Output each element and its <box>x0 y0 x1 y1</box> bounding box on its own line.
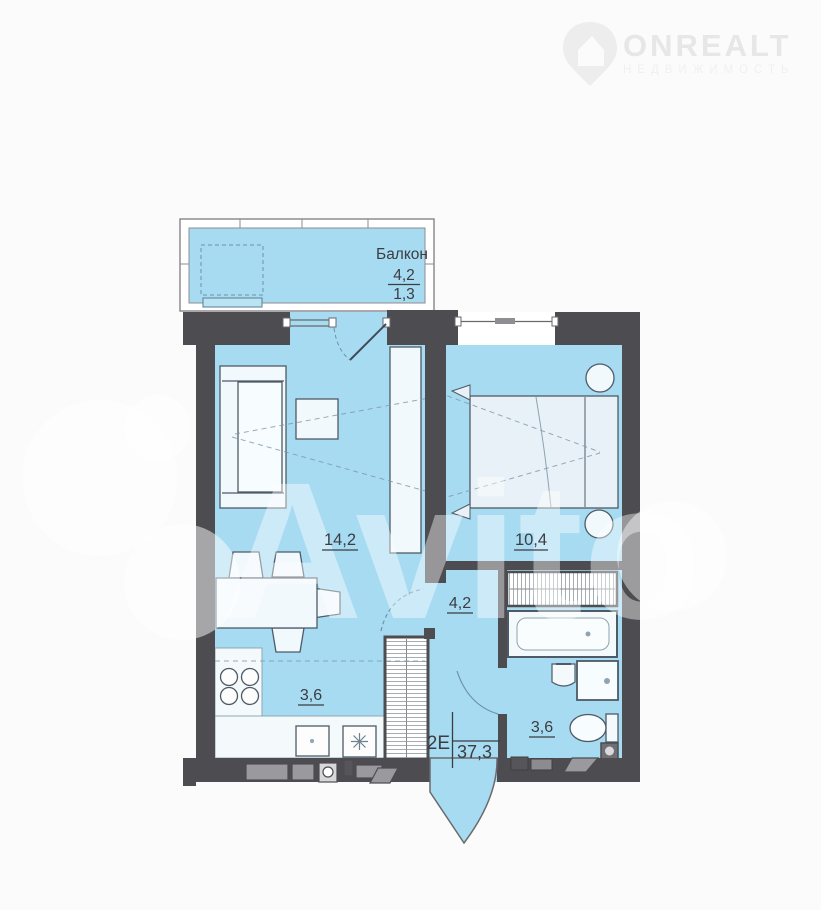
wall-hall-bath-lower <box>498 714 507 758</box>
door-mat <box>511 757 552 770</box>
floor-drain <box>601 743 618 759</box>
balcony-area-full: 4,2 <box>393 267 415 284</box>
entrance-door-swing <box>430 758 497 843</box>
balcony-area-counted: 1,3 <box>393 286 415 303</box>
screenshot-canvas: ONREALT НЕДВИЖИМОСТЬ <box>0 0 821 910</box>
washing-machine <box>577 661 618 700</box>
hallway-area: 4,2 <box>449 595 471 612</box>
bathroom-area: 3,6 <box>531 719 553 736</box>
kitchen-sink <box>296 726 329 756</box>
watermark-text: Avito <box>222 442 702 660</box>
apartment-total-area: 37,3 <box>457 742 492 762</box>
apartment-type: 2Е <box>427 733 450 754</box>
living-room-area: 14,2 <box>324 531 356 549</box>
bedroom-area: 10,4 <box>515 531 547 549</box>
floor-plan: Avito Балкон 4,2 1,3 14,2 10,4 4,2 3,6 3… <box>0 0 821 910</box>
kitchen-area: 3,6 <box>300 687 322 704</box>
balcony-label: Балкон <box>376 246 428 263</box>
nightstand-top <box>586 364 614 392</box>
hob-unit <box>343 726 376 757</box>
balcony-bench <box>203 298 262 307</box>
bedroom-window <box>455 312 558 345</box>
bathroom-sink <box>552 664 575 686</box>
toilet <box>570 714 618 742</box>
